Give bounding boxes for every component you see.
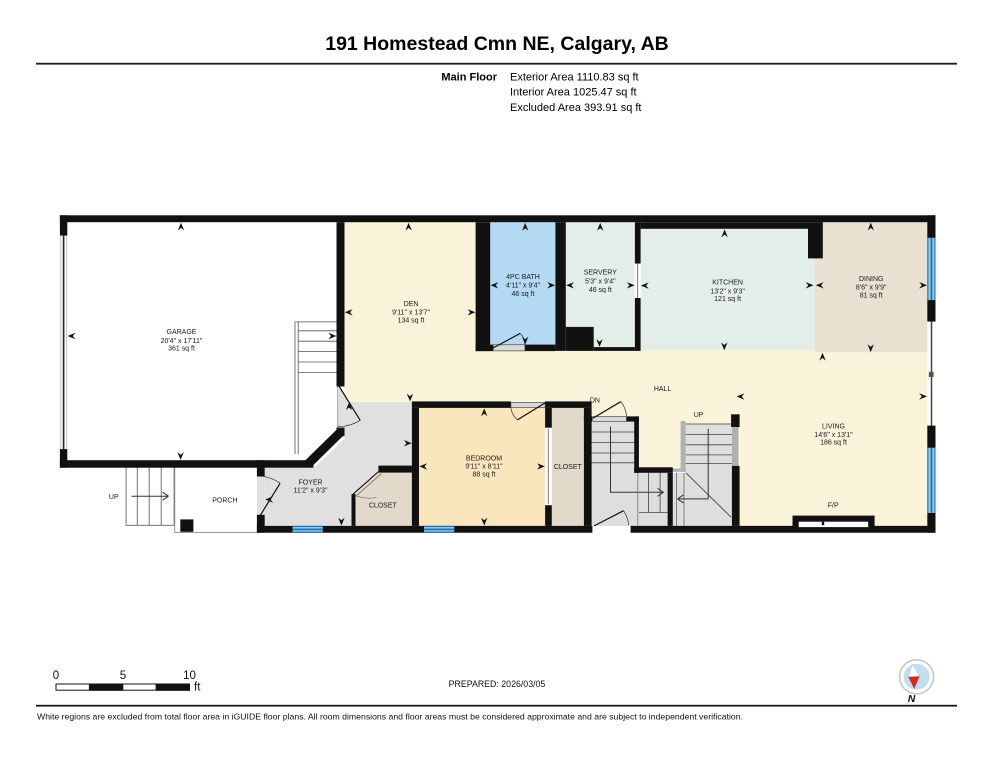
svg-text:5'3" x 9'4": 5'3" x 9'4" xyxy=(585,278,616,285)
svg-text:DINING: DINING xyxy=(859,276,884,283)
svg-text:BEDROOM: BEDROOM xyxy=(466,456,502,463)
svg-text:191 Homestead Cmn NE, Calgary,: 191 Homestead Cmn NE, Calgary, AB xyxy=(325,33,669,55)
svg-text:9'11" x 13'7": 9'11" x 13'7" xyxy=(392,310,430,317)
svg-text:PREPARED: 2026/03/05: PREPARED: 2026/03/05 xyxy=(449,679,546,689)
svg-text:Interior Area 1025.47 sq ft: Interior Area 1025.47 sq ft xyxy=(510,87,637,99)
svg-text:186 sq ft: 186 sq ft xyxy=(820,440,847,447)
svg-text:White regions are excluded fro: White regions are excluded from total fl… xyxy=(37,712,743,722)
svg-text:14'6" x 13'1": 14'6" x 13'1" xyxy=(814,432,853,439)
svg-text:DN: DN xyxy=(590,398,600,405)
svg-text:4PC BATH: 4PC BATH xyxy=(506,274,540,281)
svg-text:KITCHEN: KITCHEN xyxy=(712,280,743,287)
svg-text:Excluded Area 393.91 sq ft: Excluded Area 393.91 sq ft xyxy=(510,102,641,114)
svg-text:F/P: F/P xyxy=(828,502,839,509)
svg-text:5: 5 xyxy=(120,670,126,682)
svg-text:361 sq ft: 361 sq ft xyxy=(168,346,195,353)
svg-text:46 sq ft: 46 sq ft xyxy=(512,291,535,298)
svg-text:UP: UP xyxy=(109,494,119,501)
svg-text:134 sq ft: 134 sq ft xyxy=(398,317,425,324)
svg-text:PORCH: PORCH xyxy=(212,498,237,505)
svg-text:DEN: DEN xyxy=(404,301,419,308)
svg-text:CLOSET: CLOSET xyxy=(554,464,583,471)
svg-text:88 sq ft: 88 sq ft xyxy=(473,472,496,479)
svg-text:FOYER: FOYER xyxy=(298,479,322,486)
svg-text:Exterior Area 1110.83 sq ft: Exterior Area 1110.83 sq ft xyxy=(510,72,639,84)
svg-text:9'11" x 8'11": 9'11" x 8'11" xyxy=(465,464,503,471)
svg-text:ft: ft xyxy=(194,682,201,694)
svg-text:UP: UP xyxy=(694,412,704,419)
svg-text:LIVING: LIVING xyxy=(822,424,845,431)
svg-text:81 sq ft: 81 sq ft xyxy=(860,293,883,300)
svg-text:10: 10 xyxy=(183,670,196,682)
svg-text:4'11" x 9'4": 4'11" x 9'4" xyxy=(506,282,540,289)
svg-text:11'2" x 9'3": 11'2" x 9'3" xyxy=(294,487,328,494)
svg-text:46 sq ft: 46 sq ft xyxy=(589,287,612,294)
svg-text:0: 0 xyxy=(53,670,59,682)
svg-text:8'6" x 9'9": 8'6" x 9'9" xyxy=(856,285,887,292)
svg-text:N: N xyxy=(908,693,916,705)
svg-text:GARAGE: GARAGE xyxy=(167,329,197,336)
svg-text:HALL: HALL xyxy=(654,386,672,393)
svg-text:CLOSET: CLOSET xyxy=(369,503,398,510)
svg-text:SERVERY: SERVERY xyxy=(584,270,618,277)
svg-text:20'4" x 17'11": 20'4" x 17'11" xyxy=(161,338,203,345)
svg-text:Main Floor: Main Floor xyxy=(441,72,497,84)
svg-text:121 sq ft: 121 sq ft xyxy=(714,296,741,303)
svg-text:13'2" x 9'3": 13'2" x 9'3" xyxy=(710,288,745,295)
